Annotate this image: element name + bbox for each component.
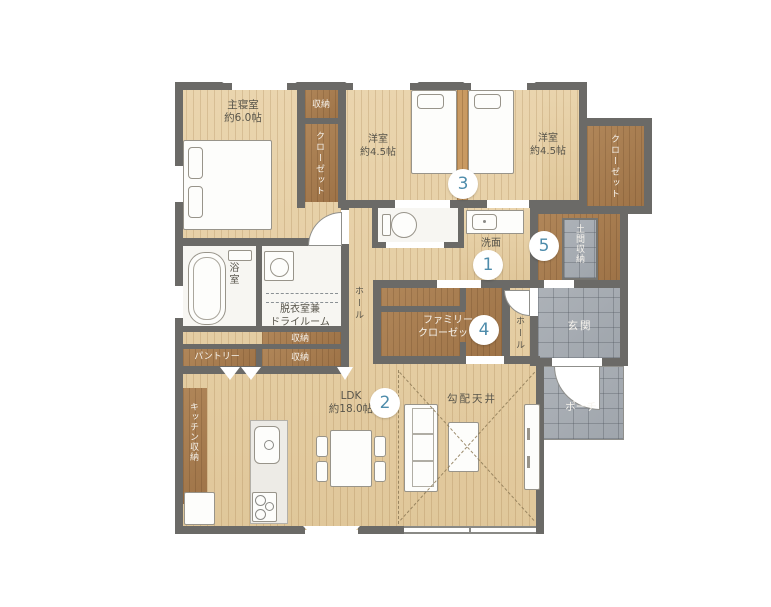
wall-closet-east-outer <box>644 118 652 214</box>
stove-burner-2 <box>265 502 274 511</box>
label-storage-mid-lower: 収納 <box>270 353 330 363</box>
label-dry-room: 脱衣室兼 ドライルーム <box>250 303 350 329</box>
pillow-1 <box>188 147 203 179</box>
sliding-door-doma <box>544 280 574 288</box>
marker-3: 3 <box>448 169 478 199</box>
floor-plan-canvas: 主寝室 約6.0帖 収納 クローゼット 洋室 約4.5帖 洋室 約4.5帖 クロ… <box>0 0 771 607</box>
door-opening-front <box>552 358 602 366</box>
label-master-bedroom-name: 主寝室 <box>193 99 293 112</box>
label-sloped-ceiling: 勾配天井 <box>422 393 522 406</box>
wall-south-a <box>175 526 305 534</box>
window-west-1 <box>175 166 183 202</box>
door-opening-bedroom-east <box>487 200 529 208</box>
label-hall-entrance: ホール <box>514 316 524 352</box>
sofa-cushion-1 <box>412 408 434 434</box>
marker-1: 1 <box>473 250 503 280</box>
window-north-2 <box>353 82 410 90</box>
wall-ldk-north <box>175 366 349 374</box>
window-north-1 <box>232 82 287 90</box>
pillow-single-west <box>417 94 444 109</box>
sofa-cushion-3 <box>412 461 434 487</box>
wall-family-west <box>373 280 381 364</box>
label-hall-center: ホール <box>353 286 363 322</box>
pillow-single-east <box>474 94 501 109</box>
label-west-room-east: 洋室 約4.5帖 <box>498 132 598 158</box>
label-storage-mid-upper: 収納 <box>270 334 330 344</box>
dining-table <box>330 430 372 487</box>
stove-burner-3 <box>255 509 266 520</box>
refrigerator <box>184 492 215 525</box>
label-bathroom: 浴室 <box>226 262 239 286</box>
label-west-room-center-size: 約4.5帖 <box>328 146 428 159</box>
label-west-room-east-name: 洋室 <box>498 132 598 145</box>
label-master-bedroom-size: 約6.0帖 <box>193 112 293 125</box>
label-west-room-center: 洋室 約4.5帖 <box>328 133 428 159</box>
label-washroom: 洗面 <box>461 237 521 250</box>
chair-4 <box>374 461 386 482</box>
sofa-cushion-2 <box>412 434 434 461</box>
sliding-door-toilet <box>386 242 444 248</box>
bathtub-inner <box>193 257 221 320</box>
label-storage-north: 収納 <box>296 100 346 110</box>
label-porch: ポーチ <box>551 401 611 414</box>
wall-closet-east-north <box>579 118 652 126</box>
window-south-mullion <box>469 526 471 534</box>
chair-3 <box>374 436 386 457</box>
toilet-tank <box>382 214 391 236</box>
label-west-room-east-size: 約4.5帖 <box>498 145 598 158</box>
window-north-3 <box>471 82 527 90</box>
label-kitchen-storage: キッチン収納 <box>188 402 198 462</box>
tv-board-handle-1 <box>527 428 530 440</box>
window-west-2 <box>175 286 183 318</box>
label-doma-storage: 土間収納 <box>574 224 584 264</box>
tv-board <box>524 404 540 490</box>
wall-storage-closet-divider <box>305 118 338 124</box>
marker-4: 4 <box>469 315 499 345</box>
vanity-faucet <box>483 220 486 223</box>
toilet-bowl <box>391 212 417 238</box>
door-opening-hall <box>341 210 349 244</box>
label-entrance: 玄関 <box>550 320 610 333</box>
label-pantry: パントリー <box>187 352 247 362</box>
marker-5: 5 <box>529 231 559 261</box>
marker-2: 2 <box>370 388 400 418</box>
wall-family-shelf <box>381 306 465 312</box>
tv-board-handle-2 <box>527 456 530 468</box>
drying-rod-1 <box>266 293 338 294</box>
pillow-2 <box>188 186 203 218</box>
wall-family-stub-1 <box>460 288 466 310</box>
label-dry-room-line2: ドライルーム <box>250 316 350 329</box>
label-dry-room-line1: 脱衣室兼 <box>250 303 350 316</box>
opening-family-closet-south <box>466 356 504 364</box>
label-west-room-center-name: 洋室 <box>328 133 428 146</box>
chair-1 <box>316 436 328 457</box>
door-opening-bedroom-center <box>395 200 450 208</box>
wall-entrance-east <box>620 206 628 366</box>
wall-family-south <box>373 356 540 364</box>
label-closet-west: クローゼット <box>314 131 324 197</box>
wall-bedrooms-south <box>345 200 587 208</box>
door-opening-entrance-hall <box>530 288 538 316</box>
label-master-bedroom: 主寝室 約6.0帖 <box>193 99 293 125</box>
washing-machine-drum <box>270 258 289 277</box>
opening-family-closet-north <box>437 280 481 288</box>
bath-counter <box>228 250 252 261</box>
wall-south-b <box>358 526 404 534</box>
label-closet-east: クローゼット <box>609 134 619 200</box>
chair-2 <box>316 461 328 482</box>
kitchen-faucet <box>264 440 274 450</box>
